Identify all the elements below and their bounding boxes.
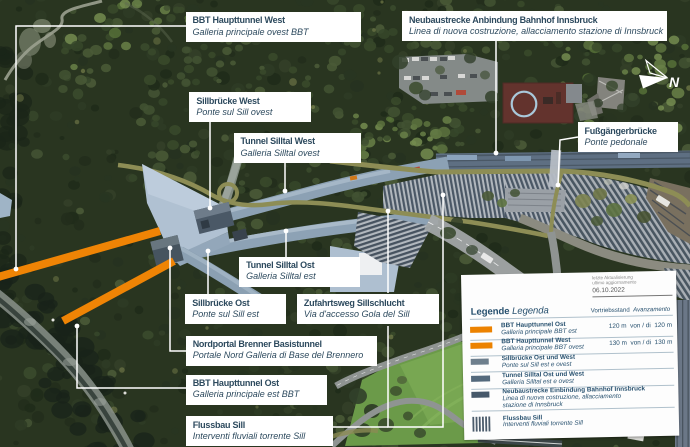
- svg-text:N: N: [669, 74, 680, 90]
